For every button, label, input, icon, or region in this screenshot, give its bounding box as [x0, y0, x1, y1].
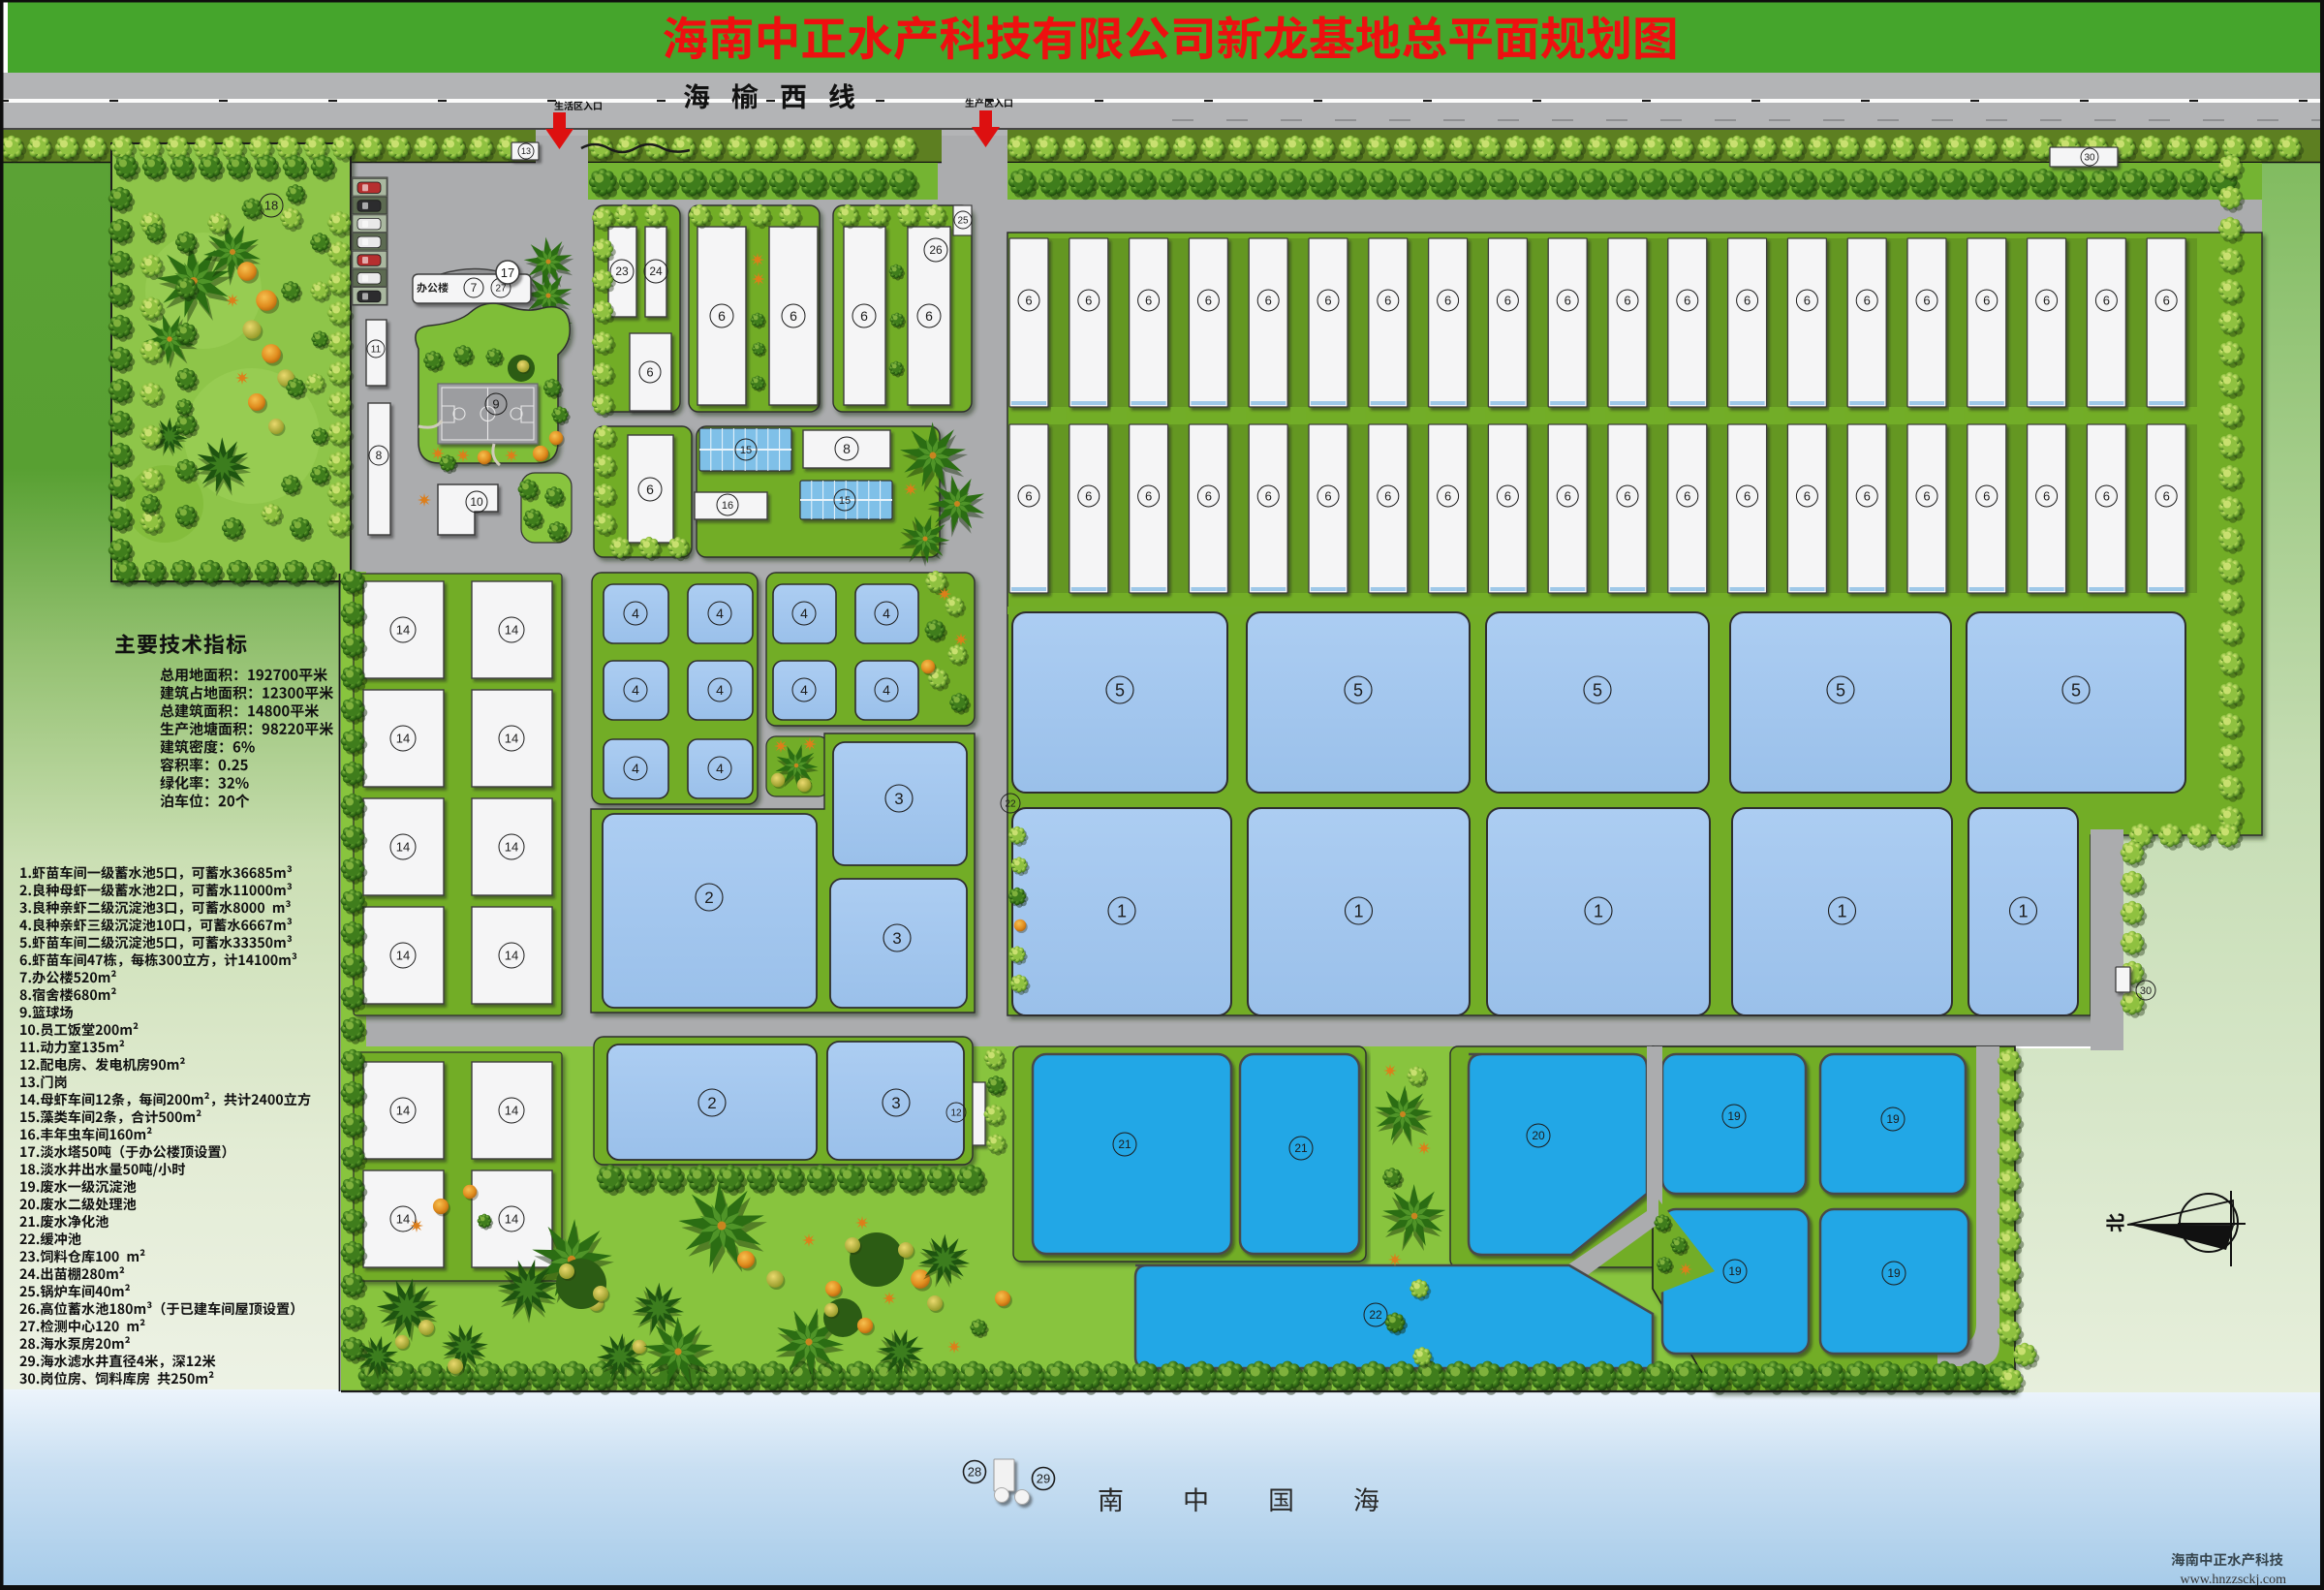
svg-text:22: 22: [1369, 1308, 1382, 1322]
svg-text:1: 1: [1837, 901, 1846, 920]
svg-text:29: 29: [1037, 1472, 1050, 1486]
svg-text:4: 4: [716, 606, 724, 621]
svg-text:5: 5: [1836, 680, 1845, 700]
svg-text:14: 14: [505, 840, 518, 855]
svg-text:4: 4: [883, 606, 890, 621]
svg-text:6: 6: [1864, 489, 1871, 504]
svg-text:6: 6: [1145, 489, 1152, 504]
svg-text:6: 6: [1025, 489, 1032, 504]
svg-text:6: 6: [646, 365, 653, 380]
svg-text:13: 13: [521, 146, 531, 156]
svg-text:3: 3: [892, 929, 901, 948]
svg-text:4: 4: [632, 761, 639, 776]
svg-text:2: 2: [704, 889, 713, 907]
svg-text:25: 25: [957, 216, 969, 227]
svg-text:24: 24: [649, 265, 663, 278]
svg-text:6: 6: [1504, 489, 1511, 504]
svg-text:6: 6: [1025, 294, 1032, 308]
svg-text:www.hnzzsckj.com: www.hnzzsckj.com: [2180, 1573, 2286, 1587]
svg-text:4: 4: [716, 761, 724, 776]
svg-text:3: 3: [891, 1094, 900, 1112]
svg-text:7: 7: [471, 281, 478, 295]
svg-text:17: 17: [501, 265, 514, 280]
svg-text:6: 6: [1744, 489, 1751, 504]
svg-text:6: 6: [2043, 489, 2050, 504]
svg-text:23: 23: [615, 265, 629, 278]
svg-text:6: 6: [1684, 294, 1690, 308]
svg-text:6: 6: [1205, 489, 1212, 504]
svg-text:6: 6: [1744, 294, 1751, 308]
svg-text:14: 14: [396, 732, 410, 746]
svg-text:6: 6: [790, 308, 797, 324]
svg-text:6: 6: [1145, 294, 1152, 308]
svg-text:6: 6: [718, 308, 726, 324]
svg-text:30: 30: [2140, 985, 2152, 997]
svg-text:6: 6: [1384, 489, 1391, 504]
svg-text:6: 6: [646, 482, 654, 497]
svg-text:14: 14: [396, 840, 410, 855]
svg-text:4: 4: [883, 682, 890, 698]
svg-text:19: 19: [1727, 1109, 1741, 1123]
svg-text:1: 1: [1353, 901, 1363, 920]
svg-text:27: 27: [495, 284, 507, 295]
svg-text:6: 6: [2103, 294, 2110, 308]
svg-text:6: 6: [1085, 489, 1092, 504]
svg-text:8: 8: [376, 449, 383, 462]
svg-text:6: 6: [1864, 294, 1871, 308]
svg-text:1: 1: [1117, 901, 1127, 920]
svg-text:14: 14: [505, 732, 518, 746]
svg-text:21: 21: [1294, 1141, 1308, 1155]
svg-text:6: 6: [1804, 489, 1811, 504]
svg-text:6: 6: [1565, 489, 1571, 504]
svg-text:20: 20: [1532, 1129, 1545, 1142]
svg-text:15: 15: [740, 445, 752, 456]
svg-text:15: 15: [839, 495, 851, 507]
svg-text:6: 6: [1444, 489, 1451, 504]
svg-text:4: 4: [800, 606, 808, 621]
svg-text:14: 14: [396, 949, 410, 963]
svg-text:8: 8: [843, 441, 851, 456]
svg-text:28: 28: [968, 1465, 981, 1480]
svg-text:6: 6: [1384, 294, 1391, 308]
svg-text:14: 14: [396, 623, 410, 638]
svg-text:5: 5: [1593, 680, 1602, 700]
svg-text:14: 14: [396, 1104, 410, 1118]
svg-text:6: 6: [925, 308, 933, 324]
svg-text:21: 21: [1118, 1138, 1131, 1151]
svg-text:6: 6: [1923, 294, 1930, 308]
svg-text:6: 6: [860, 308, 868, 324]
svg-text:5: 5: [1115, 680, 1125, 700]
svg-text:6: 6: [1983, 294, 1990, 308]
svg-text:6: 6: [2043, 294, 2050, 308]
svg-text:5: 5: [1353, 680, 1363, 700]
svg-text:6: 6: [1624, 489, 1630, 504]
svg-text:4: 4: [800, 682, 808, 698]
svg-text:26: 26: [929, 243, 943, 257]
svg-text:6: 6: [1265, 294, 1272, 308]
svg-text:6: 6: [1444, 294, 1451, 308]
svg-text:30: 30: [2084, 153, 2095, 164]
svg-text:9: 9: [492, 397, 499, 412]
svg-text:14: 14: [505, 1212, 518, 1227]
svg-text:6: 6: [1324, 294, 1331, 308]
svg-text:12: 12: [950, 1108, 962, 1119]
svg-text:6: 6: [1085, 294, 1092, 308]
svg-text:19: 19: [1728, 1264, 1742, 1278]
svg-text:18: 18: [264, 199, 278, 213]
svg-text:4: 4: [632, 682, 639, 698]
svg-text:6: 6: [1923, 489, 1930, 504]
svg-text:6: 6: [2103, 489, 2110, 504]
svg-text:6: 6: [1624, 294, 1630, 308]
svg-text:5: 5: [2071, 680, 2081, 700]
svg-text:6: 6: [1504, 294, 1511, 308]
svg-text:6: 6: [2163, 489, 2170, 504]
svg-text:14: 14: [505, 949, 518, 963]
svg-text:10: 10: [470, 495, 483, 509]
svg-text:19: 19: [1887, 1266, 1901, 1280]
svg-text:11: 11: [371, 345, 382, 356]
svg-text:14: 14: [396, 1212, 410, 1227]
svg-text:1: 1: [2018, 901, 2028, 920]
svg-text:4: 4: [716, 682, 724, 698]
svg-text:3: 3: [894, 790, 903, 808]
svg-text:6: 6: [1804, 294, 1811, 308]
svg-text:2: 2: [707, 1094, 716, 1112]
svg-text:16: 16: [722, 500, 733, 512]
svg-text:6: 6: [1565, 294, 1571, 308]
svg-text:6: 6: [1265, 489, 1272, 504]
svg-text:6: 6: [1205, 294, 1212, 308]
svg-text:1: 1: [1594, 901, 1603, 920]
svg-text:6: 6: [1983, 489, 1990, 504]
svg-text:14: 14: [505, 1104, 518, 1118]
svg-text:4: 4: [632, 606, 639, 621]
svg-text:14: 14: [505, 623, 518, 638]
svg-text:19: 19: [1886, 1112, 1900, 1126]
svg-text:6: 6: [1684, 489, 1690, 504]
svg-text:6: 6: [2163, 294, 2170, 308]
svg-text:6: 6: [1324, 489, 1331, 504]
svg-text:22: 22: [1005, 799, 1016, 810]
